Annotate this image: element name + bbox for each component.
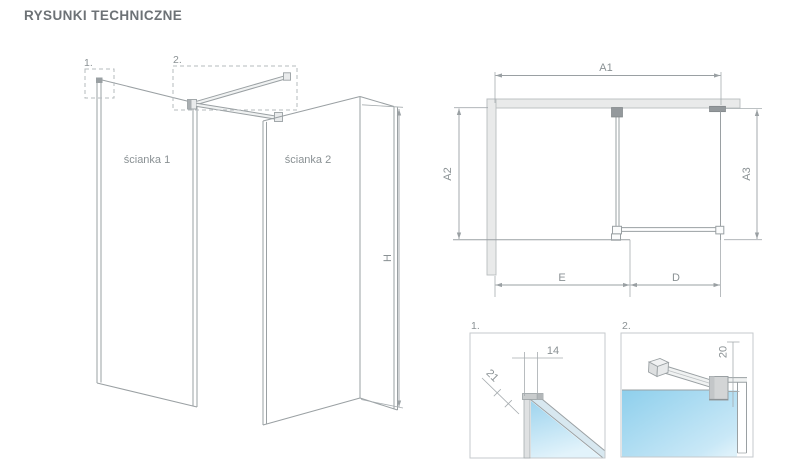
support-bar-wall: [197, 73, 291, 105]
dim-a1-label: A1: [599, 62, 612, 74]
wall-top: [487, 99, 740, 108]
isometric-view: 1. 2. ścianka 1 ścianka 2 H: [84, 54, 403, 425]
panel2-right-bracket: [716, 226, 724, 234]
panel2-left-bracket: [613, 226, 622, 234]
technical-drawing: 1. 2. ścianka 1 ścianka 2 H: [0, 0, 800, 474]
support-bar-panel2: [197, 103, 283, 121]
wall-rod: [728, 378, 747, 383]
dim-h: H: [361, 105, 403, 408]
dim-21: 21: [482, 367, 519, 414]
detail2-marker: 2.: [173, 54, 182, 66]
wall-profile: [524, 397, 530, 459]
glass-face: [531, 401, 601, 458]
detail-1: 1. 14 21: [470, 320, 605, 458]
dim-h-label: H: [382, 254, 394, 262]
dim-a2-label: A2: [442, 167, 454, 180]
dim-d-label: D: [672, 272, 680, 284]
panel2-label: ścianka 2: [285, 154, 331, 166]
glass-panel-2: [263, 97, 398, 426]
panel1-wall-bracket: [612, 108, 623, 118]
clamp-bracket: [710, 377, 729, 401]
wall-left: [487, 99, 496, 275]
glass-panel-1: [96, 78, 197, 408]
dim-e: E: [496, 272, 630, 285]
detail1-box-marker: 1.: [471, 320, 480, 332]
panel1-label: ścianka 1: [124, 154, 170, 166]
top-bracket: [188, 100, 197, 110]
top-view: A1 A2 A3 E D: [442, 62, 762, 297]
dim-14: 14: [512, 345, 563, 399]
detail-2: 2.: [621, 320, 753, 457]
wall-profile-cap: [96, 78, 103, 84]
detail1-callout-box: [85, 69, 114, 98]
detail2-box-marker: 2.: [622, 320, 631, 332]
dim-14-label: 14: [547, 345, 559, 357]
dim-d: D: [631, 272, 721, 285]
support-bar: [649, 359, 713, 388]
dim-e-label: E: [558, 272, 565, 284]
detail1-marker: 1.: [84, 57, 93, 69]
bar-wall-bracket: [710, 106, 726, 111]
dim-a3: A3: [724, 109, 762, 240]
dim-a3-label: A3: [741, 167, 753, 180]
dim-20-label: 20: [718, 346, 730, 358]
dim-a2: A2: [442, 108, 488, 239]
